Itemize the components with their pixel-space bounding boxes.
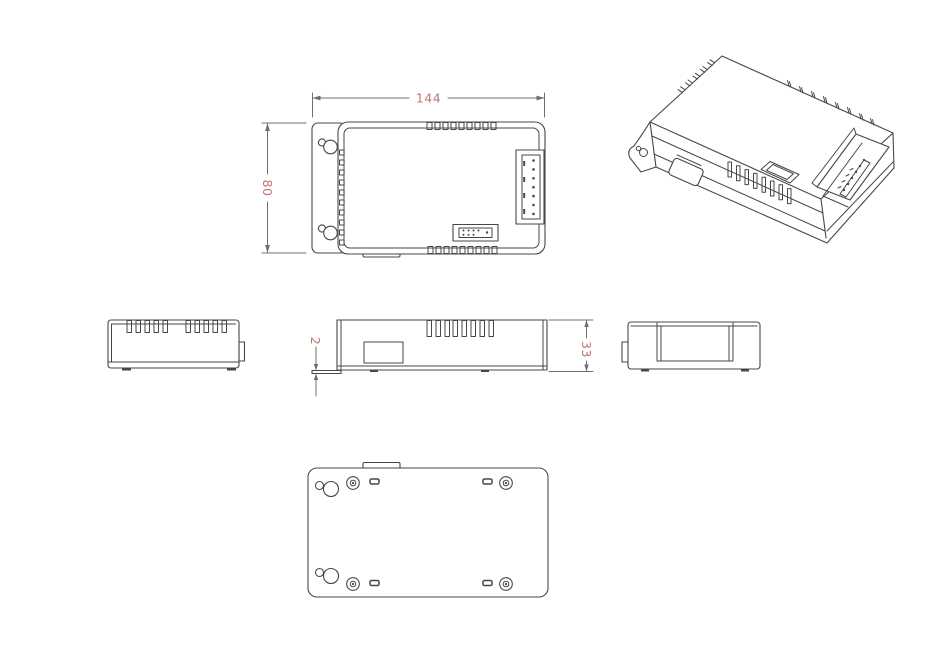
right-side-view (622, 322, 760, 372)
side-tab (239, 342, 245, 361)
arrowhead-icon (314, 374, 318, 381)
enclosure-body (338, 122, 545, 254)
isometric-view (629, 56, 894, 243)
dimension-depth: 33 (549, 320, 594, 372)
front-view: 2 33 (308, 320, 594, 396)
technical-drawing: 144 80 (0, 0, 938, 648)
arrowhead-icon (584, 365, 588, 372)
arrowhead-icon (584, 320, 588, 327)
arrowhead-icon (265, 245, 270, 253)
dimension-height: 80 (260, 123, 306, 253)
bottom-view (308, 463, 548, 598)
mounting-flange-edge (312, 371, 341, 374)
aux-connector (453, 225, 498, 242)
main-connector (516, 150, 544, 224)
dimension-flange: 2 (308, 337, 323, 396)
arrowhead-icon (313, 96, 321, 101)
arrowhead-icon (314, 364, 318, 371)
left-side-view (108, 320, 245, 371)
dim-depth-label: 33 (579, 341, 594, 358)
dimension-width: 144 (313, 91, 545, 118)
arrowhead-icon (537, 96, 545, 101)
arrowhead-icon (265, 123, 270, 131)
dim-height-label: 80 (260, 180, 275, 197)
dim-flange-label: 2 (308, 337, 323, 345)
dim-width-label: 144 (416, 91, 441, 106)
drawing-canvas: 144 80 (0, 0, 938, 648)
top-view (312, 122, 545, 257)
